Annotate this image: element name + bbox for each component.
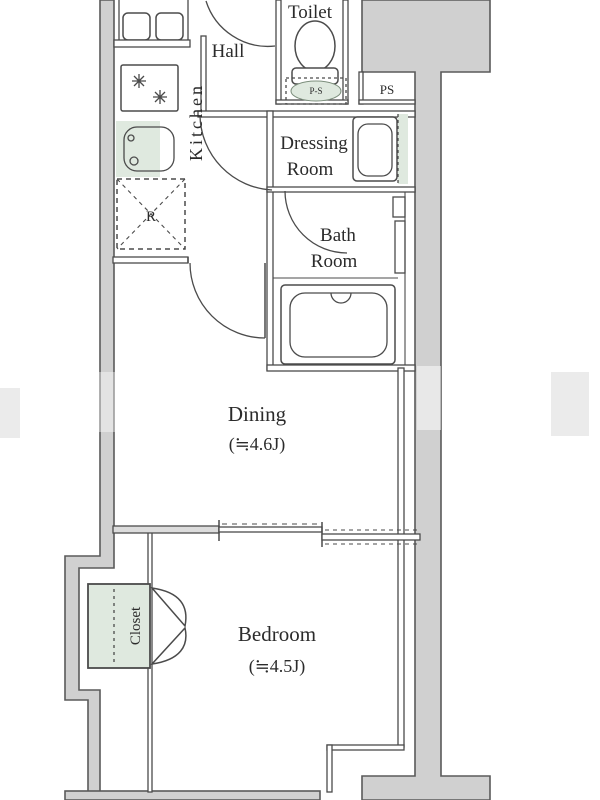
floorplan-canvas: Toilet Hall Kitchen PS Dressing Room Bat… (0, 0, 600, 800)
toilet-label: Toilet (288, 2, 333, 23)
watermark-block-right (551, 372, 589, 436)
bottom-wall-strip (65, 791, 320, 800)
bath-room-label-line1: Bath (320, 225, 356, 246)
dressing-bottom-wall (267, 187, 415, 192)
bathtub-outer (281, 285, 395, 364)
toilet-left-wall (276, 0, 281, 104)
kitchen-bottom-wall (113, 257, 188, 263)
ps-left-wall (359, 72, 363, 104)
dining-size-label: (≒4.6J) (229, 434, 286, 455)
toilet-tank-label: P-S (309, 86, 322, 96)
closet-bifold-bottom (152, 628, 186, 664)
dressing-bath-left-wall (267, 111, 273, 370)
watermark-block-left (0, 388, 20, 438)
refrigerator-label: R (146, 209, 156, 225)
sliding-partition (113, 520, 420, 547)
closet-label: Closet (128, 606, 144, 645)
dining-door-arc (190, 263, 265, 338)
bedroom-step-v-wall (327, 745, 332, 792)
stove (121, 65, 178, 111)
ps-label: PS (380, 82, 394, 97)
ps-bottom-wall (359, 100, 415, 104)
bath-shelf-upper (393, 197, 405, 217)
entrance-door-arc (206, 1, 275, 46)
bedroom-label: Bedroom (238, 622, 316, 646)
watermark (0, 366, 589, 438)
kitchen-label: Kitchen (186, 83, 206, 161)
counter-edge (114, 40, 190, 47)
toilet-right-wall (343, 0, 348, 104)
hall-label: Hall (212, 41, 245, 62)
dressing-door-arc (200, 116, 272, 190)
watermark-block-wall (99, 372, 115, 432)
closet-bifold-top (152, 588, 186, 626)
sliding-panel-1 (219, 527, 322, 532)
dining-right-wall (398, 368, 404, 747)
floor-plan: Toilet Hall Kitchen PS Dressing Room Bat… (0, 0, 600, 800)
dressing-room-label-line1: Dressing (280, 133, 348, 154)
watermark-block-shaft (417, 366, 441, 430)
bath-bottom-wall (267, 365, 415, 371)
dressing-room-label-line2: Room (287, 159, 334, 180)
hall-bottom-wall (198, 111, 415, 117)
counter-basin-right (156, 13, 183, 40)
bedroom-size-label: (≒4.5J) (249, 656, 306, 677)
sink-counter (116, 121, 160, 177)
toilet-bowl (295, 21, 335, 71)
dressing-fixtures (353, 114, 408, 184)
dining-label: Dining (228, 402, 287, 426)
counter-basin-left (123, 13, 150, 40)
bath-shelf-lower (395, 221, 405, 273)
washer-side-strip (398, 114, 408, 184)
partition-wall-segment (113, 526, 219, 533)
bedroom-step-h-wall (327, 745, 404, 750)
bath-room-label-line2: Room (311, 251, 358, 272)
sliding-panel-2 (322, 534, 420, 540)
